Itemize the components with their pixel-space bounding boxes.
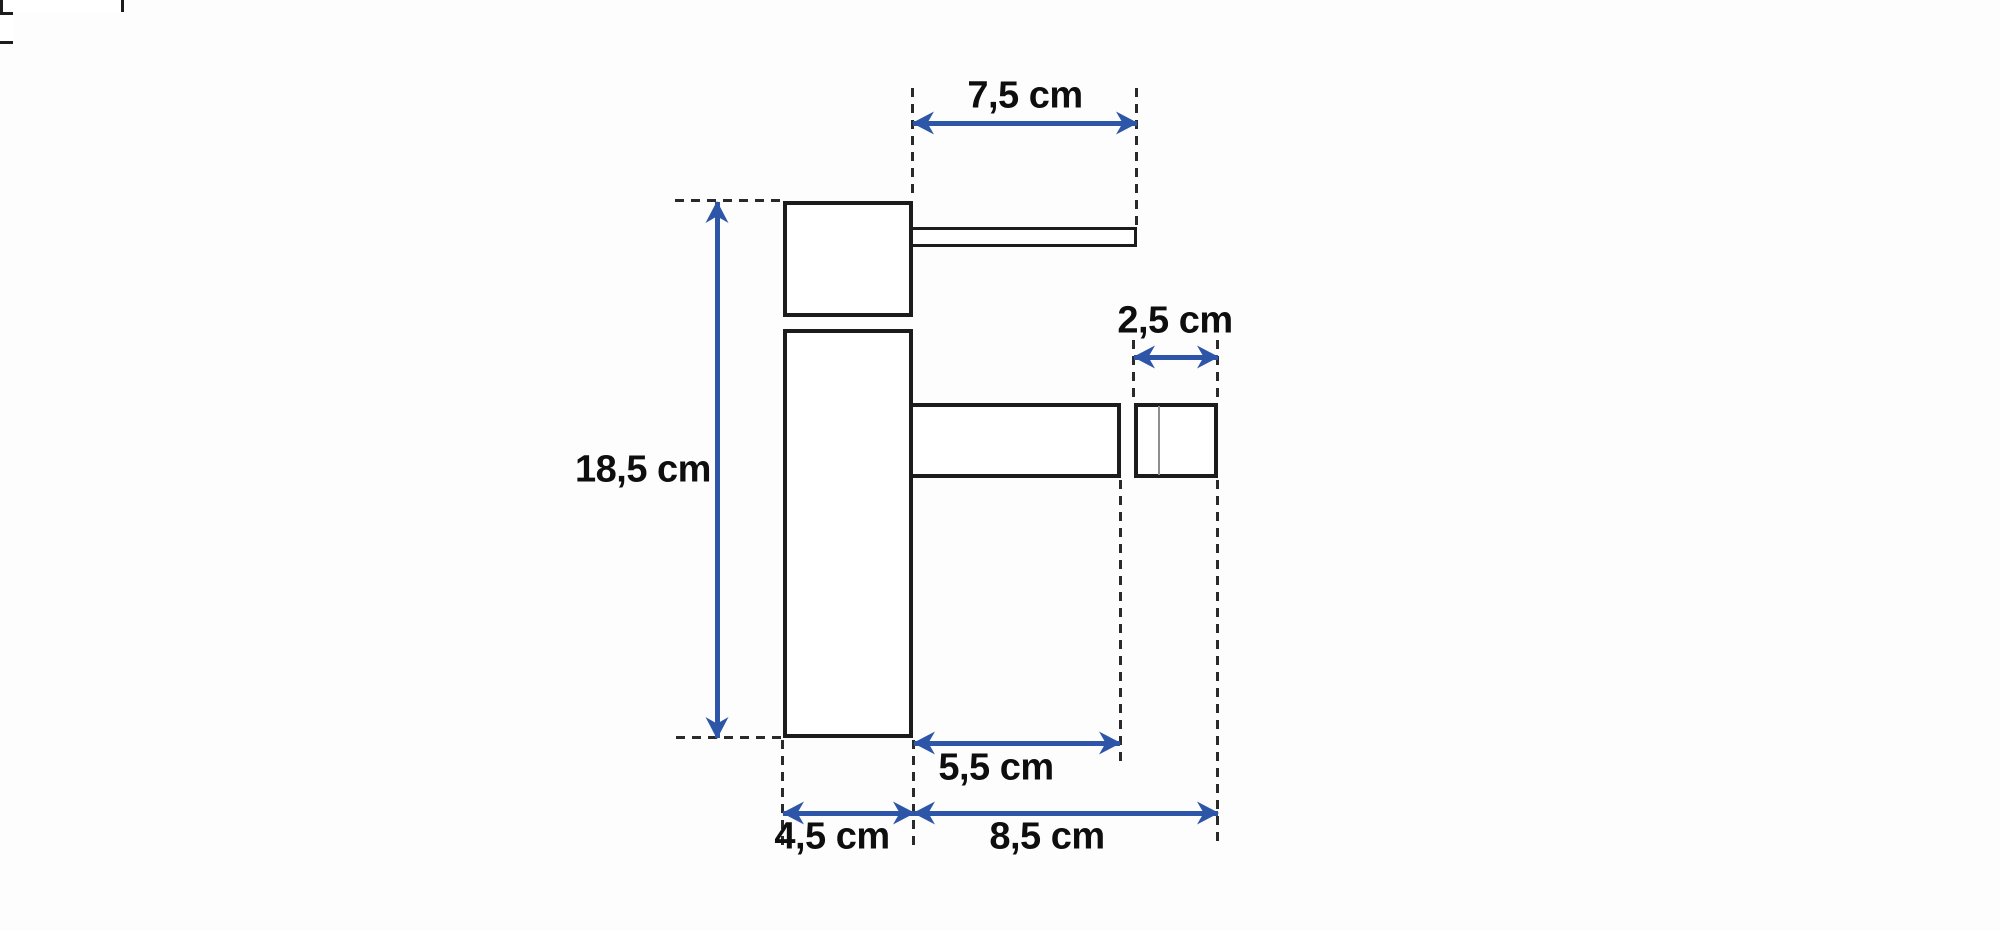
extension-line-handle-left [911, 88, 914, 199]
dimension-label-spout-reach: 8,5 cm [989, 816, 1104, 859]
extension-line-handle-right [1135, 88, 1138, 225]
dimension-arrow-aerator-width [1134, 345, 1218, 369]
faucet-lever-handle [910, 227, 1137, 247]
faucet-collar-ring [0, 0, 124, 12]
faucet-handle-block [783, 201, 913, 317]
extension-line-base-right [912, 740, 915, 846]
dimension-label-aerator-width: 2,5 cm [1117, 300, 1232, 343]
extension-line-height-bottom [676, 736, 783, 739]
dimension-label-spout-length: 5,5 cm [938, 747, 1053, 790]
dimension-diagram: 7,5 cm 2,5 cm 18,5 cm 5,5 cm 4,5 cm 8,5 … [0, 0, 2000, 931]
faucet-body [783, 329, 913, 738]
dimension-label-total-height: 18,5 cm [575, 449, 711, 492]
dimension-label-base-width: 4,5 cm [774, 816, 889, 859]
faucet-aerator [1134, 403, 1218, 478]
extension-line-reach-end [1216, 480, 1219, 846]
faucet-spout [909, 403, 1121, 478]
extension-line-spout-end [1119, 480, 1122, 766]
extension-line-height-top [675, 199, 783, 202]
faucet-spout-neck [0, 12, 13, 44]
dimension-label-handle-length: 7,5 cm [967, 75, 1082, 118]
aerator-seam-line [1158, 406, 1160, 475]
